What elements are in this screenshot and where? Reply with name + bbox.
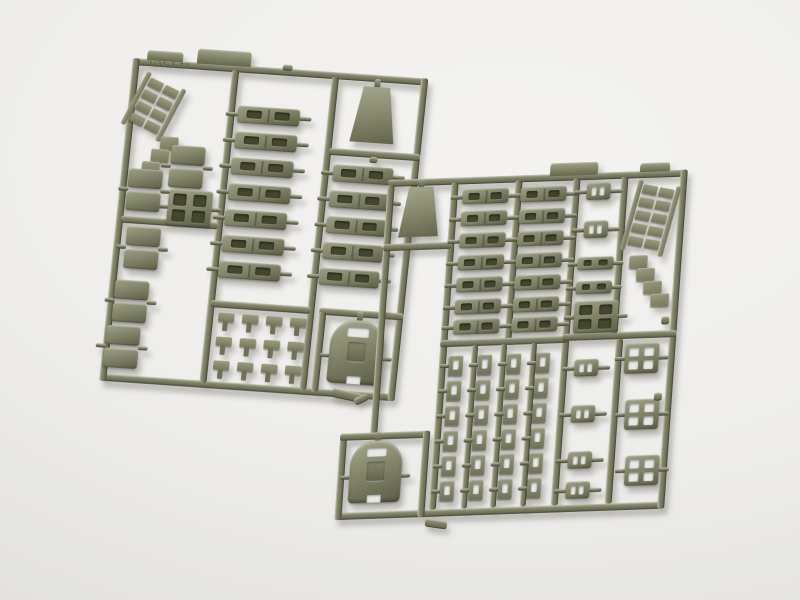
part-hole: [480, 384, 487, 393]
dome-notch: [367, 494, 381, 503]
part-slot: [583, 260, 592, 266]
track-link-part: [514, 274, 561, 291]
slotted-pad-part: [503, 404, 518, 425]
dome-boss: [366, 461, 385, 480]
t-pad-part: [242, 314, 259, 324]
stair-pad: [650, 293, 669, 307]
part-hole: [643, 472, 654, 482]
wheel-pair-part: [125, 168, 163, 212]
twin-slot-pad-part: [583, 220, 608, 238]
part-slot: [355, 274, 370, 283]
gate-stem: [292, 168, 305, 173]
part-slot: [246, 110, 262, 119]
gate-stem: [611, 284, 622, 288]
part-slot: [265, 190, 281, 199]
gate-stem: [658, 355, 669, 359]
part-slot: [261, 216, 277, 225]
part-slot: [460, 323, 472, 330]
part-slot: [469, 193, 481, 200]
part-slot: [461, 303, 473, 310]
part-slot: [327, 273, 342, 282]
gate-stem: [658, 411, 669, 415]
part-hole: [581, 455, 586, 464]
sprue-rail: [605, 339, 623, 504]
quad-block-part: [573, 300, 619, 334]
part-hole: [502, 483, 509, 492]
part-slot: [481, 322, 493, 329]
part-slot: [524, 235, 536, 242]
grid-pad: [658, 187, 675, 199]
track-link-part: [332, 164, 394, 185]
grid-pad: [147, 77, 165, 92]
part-slot: [368, 171, 383, 180]
part-slot: [539, 320, 551, 327]
track-link-part: [456, 276, 503, 293]
part-hole: [589, 225, 594, 234]
part-slot: [237, 188, 253, 197]
gate-stem: [564, 213, 577, 217]
grid-pad: [141, 89, 159, 104]
track-link-part: [457, 254, 504, 271]
sprue-rail: [334, 502, 664, 521]
part-slot: [540, 300, 552, 307]
part-slot: [274, 112, 290, 121]
t-pad-part: [237, 362, 254, 372]
part-hole: [571, 485, 576, 494]
pair-block: [123, 249, 159, 270]
part-hole: [597, 224, 602, 233]
part-hole: [628, 360, 639, 370]
part-hole: [643, 416, 654, 426]
slotted-pad-part: [535, 352, 550, 373]
part-hole: [592, 186, 597, 195]
gate-stem: [296, 142, 309, 147]
part-hole: [505, 433, 512, 442]
sprue-right: [364, 170, 688, 520]
part-hole: [629, 347, 640, 357]
sprue-tab: [550, 162, 599, 177]
grid-pad: [634, 210, 651, 222]
part-hole: [644, 458, 655, 468]
part-hole: [447, 435, 454, 444]
gate-stem: [400, 473, 410, 477]
part-slot: [365, 197, 380, 206]
pair-block: [127, 168, 163, 189]
gate-stem: [279, 271, 292, 276]
gate-stem: [559, 279, 572, 283]
track-link-part: [518, 208, 565, 225]
part-hole: [475, 459, 482, 468]
part-slot: [272, 138, 288, 147]
part-hole: [509, 383, 516, 392]
part-hole: [449, 410, 456, 419]
part-hole: [532, 457, 539, 466]
part-hole: [579, 485, 584, 494]
part-hole: [628, 472, 639, 482]
part-hole: [478, 409, 485, 418]
grid-pad: [651, 213, 668, 225]
part-hole: [628, 416, 639, 426]
stair-pad: [629, 255, 648, 269]
part-slot: [598, 318, 612, 329]
part-slot: [192, 195, 206, 207]
part-hole: [534, 432, 541, 441]
gate-stem: [561, 257, 574, 261]
ladder-grid-part: [620, 179, 682, 257]
part-slot: [545, 234, 557, 241]
stair-pad: [150, 149, 169, 163]
part-slot: [597, 284, 606, 290]
part-hole: [579, 363, 584, 372]
track-link-part: [459, 232, 506, 249]
part-hole: [643, 360, 654, 370]
dome-hatch-part: [347, 440, 403, 504]
part-hole: [531, 482, 538, 491]
gate-nub: [661, 316, 670, 324]
track-link-part: [520, 186, 567, 203]
slotted-pad-part: [475, 380, 490, 401]
part-slot: [463, 281, 475, 288]
part-slot: [362, 223, 377, 232]
t-pad-part: [218, 313, 235, 323]
part-slot: [578, 319, 592, 330]
track-link-part: [453, 318, 500, 335]
part-slot: [527, 191, 539, 198]
gate-stem: [594, 411, 607, 415]
part-slot: [259, 242, 275, 251]
part-slot: [542, 278, 554, 285]
part-slot: [482, 302, 494, 309]
stair-pad: [636, 268, 655, 282]
pad-bar-part: [575, 280, 612, 294]
photo-model-kit-sprues: 1/35 T-72: [0, 0, 800, 600]
part-slot: [484, 280, 496, 287]
sprue-connector: [425, 519, 448, 530]
part-hole: [538, 382, 545, 391]
grid-pad: [638, 197, 655, 209]
gate-stem: [612, 260, 623, 264]
slotted-pad-part: [445, 406, 460, 427]
pair-block: [111, 302, 147, 323]
twin-slot-pad-part: [570, 405, 595, 423]
part-slot: [598, 260, 607, 266]
part-slot: [230, 240, 246, 249]
part-hole: [540, 357, 547, 366]
twin-slot-pad-part: [565, 481, 590, 499]
part-hole: [444, 485, 451, 494]
slotted-pad-part: [446, 381, 461, 402]
track-link-part: [221, 235, 285, 256]
track-link-part: [512, 296, 559, 313]
dome-notch: [346, 375, 361, 384]
grid-pad: [647, 226, 664, 238]
part-hole: [576, 409, 581, 418]
part-slot: [341, 169, 356, 178]
quad-block-part: [624, 399, 660, 430]
slotted-pad-part: [497, 479, 512, 500]
stair-pad: [643, 280, 662, 294]
gate-stem: [160, 189, 170, 194]
grid-pad: [129, 112, 147, 127]
slotted-pad-part: [501, 429, 516, 450]
track-link-part: [228, 183, 292, 204]
quad-block-part: [624, 343, 660, 374]
t-pad-part: [239, 338, 256, 348]
part-hole: [453, 360, 460, 369]
part-hole: [482, 359, 489, 368]
grid-pad: [135, 101, 153, 116]
gate-nub: [369, 157, 378, 164]
track-link-part: [224, 209, 288, 230]
sprue-tab: [640, 162, 671, 172]
t-pad-part: [261, 364, 278, 374]
part-slot: [466, 237, 478, 244]
gate-stem: [289, 194, 302, 199]
pair-block: [170, 145, 206, 166]
gate-stem: [591, 457, 604, 461]
track-link-part: [326, 216, 388, 237]
t-pad-part: [213, 360, 230, 370]
slotted-pad-part: [468, 480, 483, 501]
twin-slot-pad-part: [567, 451, 592, 469]
slotted-pad-part: [439, 481, 454, 502]
part-hole: [473, 484, 480, 493]
part-hole: [476, 434, 483, 443]
part-slot: [173, 194, 187, 206]
part-slot: [519, 301, 531, 308]
track-link-part: [322, 242, 384, 263]
part-slot: [227, 265, 243, 274]
wheel-pair-part: [103, 325, 141, 369]
part-slot: [525, 213, 537, 220]
t-pad-part: [263, 340, 280, 350]
sprue-rail: [383, 242, 451, 251]
pair-block: [114, 279, 150, 300]
slotted-pad-part: [477, 354, 492, 375]
pad-bar-part: [577, 256, 614, 270]
slotted-pad-part: [506, 353, 521, 374]
part-slot: [331, 247, 346, 256]
dome-hole: [366, 447, 387, 457]
part-slot: [255, 267, 271, 276]
gate-stem: [607, 226, 620, 230]
dome-hole: [347, 327, 370, 338]
track-link-part: [462, 188, 509, 205]
gate-stem: [146, 301, 156, 306]
part-hole: [644, 346, 655, 356]
twin-slot-pad-part: [574, 359, 599, 377]
pair-block: [125, 191, 161, 212]
pair-block: [105, 325, 141, 346]
part-slot: [171, 209, 185, 221]
part-slot: [191, 211, 205, 223]
part-hole: [451, 385, 458, 394]
grid-pad: [631, 223, 648, 235]
sprue-rail: [340, 431, 430, 441]
part-slot: [467, 215, 479, 222]
quad-block-part: [624, 455, 660, 486]
gate-stem: [283, 245, 296, 250]
part-hole: [507, 408, 514, 417]
pair-block: [125, 226, 161, 247]
t-pad-part: [290, 318, 307, 328]
part-slot: [335, 221, 350, 230]
part-hole: [644, 402, 655, 412]
sprue-rail: [311, 312, 326, 392]
gate-stem: [609, 188, 622, 192]
slotted-pad-part: [499, 454, 514, 475]
t-pad-part: [285, 365, 302, 375]
gate-stem: [562, 235, 575, 239]
part-slot: [358, 249, 373, 258]
gate-stem: [418, 179, 425, 188]
slotted-pad-part: [528, 453, 543, 474]
grid-pad: [654, 200, 671, 212]
track-link-part: [217, 261, 281, 282]
slotted-pad-part: [504, 379, 519, 400]
track-link-part: [318, 268, 380, 289]
part-hole: [446, 460, 453, 469]
track-link-part: [234, 131, 298, 152]
trapezoid-panel-part: [349, 86, 399, 145]
slotted-pad-part: [532, 403, 547, 424]
part-hole: [587, 363, 592, 372]
part-slot: [579, 305, 593, 316]
pair-block: [103, 348, 139, 369]
part-hole: [573, 455, 578, 464]
gate-stem: [589, 487, 602, 491]
part-slot: [337, 195, 352, 204]
t-pad-part: [287, 342, 304, 352]
grid-pad: [627, 236, 644, 248]
wheel-pair-part: [111, 279, 149, 323]
track-link-part: [237, 105, 301, 126]
part-slot: [599, 304, 613, 315]
part-slot: [485, 258, 497, 265]
gate-nub: [282, 64, 293, 71]
grid-pad: [641, 184, 658, 196]
wheel-pair-part: [168, 145, 206, 189]
part-slot: [487, 236, 499, 243]
part-slot: [581, 284, 590, 290]
track-link-part: [328, 190, 390, 211]
gate-stem: [558, 301, 571, 305]
part-slot: [543, 256, 555, 263]
track-link-part: [230, 157, 294, 178]
gate-stem: [617, 314, 628, 318]
part-hole: [511, 358, 518, 367]
part-slot: [522, 257, 534, 264]
slotted-pad-part: [448, 355, 463, 376]
gate-stem: [374, 79, 381, 88]
part-slot: [239, 162, 255, 171]
gate-stem: [137, 346, 147, 351]
gate-stem: [203, 166, 213, 171]
dome-boss: [346, 341, 366, 361]
part-slot: [546, 212, 558, 219]
gate-stem: [210, 208, 221, 213]
part-slot: [548, 190, 560, 197]
slotted-pad-part: [470, 455, 485, 476]
gate-stem: [158, 247, 168, 252]
part-hole: [600, 186, 605, 195]
track-link-part: [511, 316, 558, 333]
slotted-pad-part: [530, 428, 545, 449]
slotted-pad-part: [533, 378, 548, 399]
twin-slot-pad-part: [586, 182, 611, 200]
gate-stem: [597, 365, 610, 369]
part-slot: [233, 214, 249, 223]
wheel-pair-part: [123, 226, 161, 270]
part-slot: [268, 164, 284, 173]
quad-block-part: [166, 189, 214, 228]
gate-stem: [556, 321, 569, 325]
trapezoid-panel-part: [398, 186, 441, 238]
part-slot: [490, 192, 502, 199]
track-link-part: [461, 210, 508, 227]
part-slot: [243, 136, 259, 145]
part-hole: [629, 403, 640, 413]
track-link-part: [515, 252, 562, 269]
slotted-pad-part: [443, 431, 458, 452]
scene: 1/35 T-72: [0, 0, 800, 600]
sprue-rail: [210, 300, 310, 314]
part-slot: [518, 321, 530, 328]
grid-pad: [643, 239, 660, 251]
gate-stem: [658, 467, 669, 471]
t-pad-part: [215, 336, 232, 346]
part-hole: [584, 409, 589, 418]
part-hole: [629, 459, 640, 469]
gate-nub: [654, 393, 663, 401]
slotted-pad-part: [441, 456, 456, 477]
gate-stem: [298, 116, 311, 121]
part-slot: [521, 279, 533, 286]
gate-stem: [285, 220, 298, 225]
part-hole: [536, 407, 543, 416]
part-slot: [488, 214, 500, 221]
track-link-part: [454, 298, 501, 315]
part-slot: [464, 259, 476, 266]
t-pad-part: [266, 316, 283, 326]
part-hole: [504, 458, 511, 467]
slotted-pad-part: [472, 430, 487, 451]
slotted-pad-part: [526, 478, 541, 499]
track-link-part: [517, 230, 564, 247]
slotted-pad-part: [474, 405, 489, 426]
pair-block: [168, 168, 204, 189]
